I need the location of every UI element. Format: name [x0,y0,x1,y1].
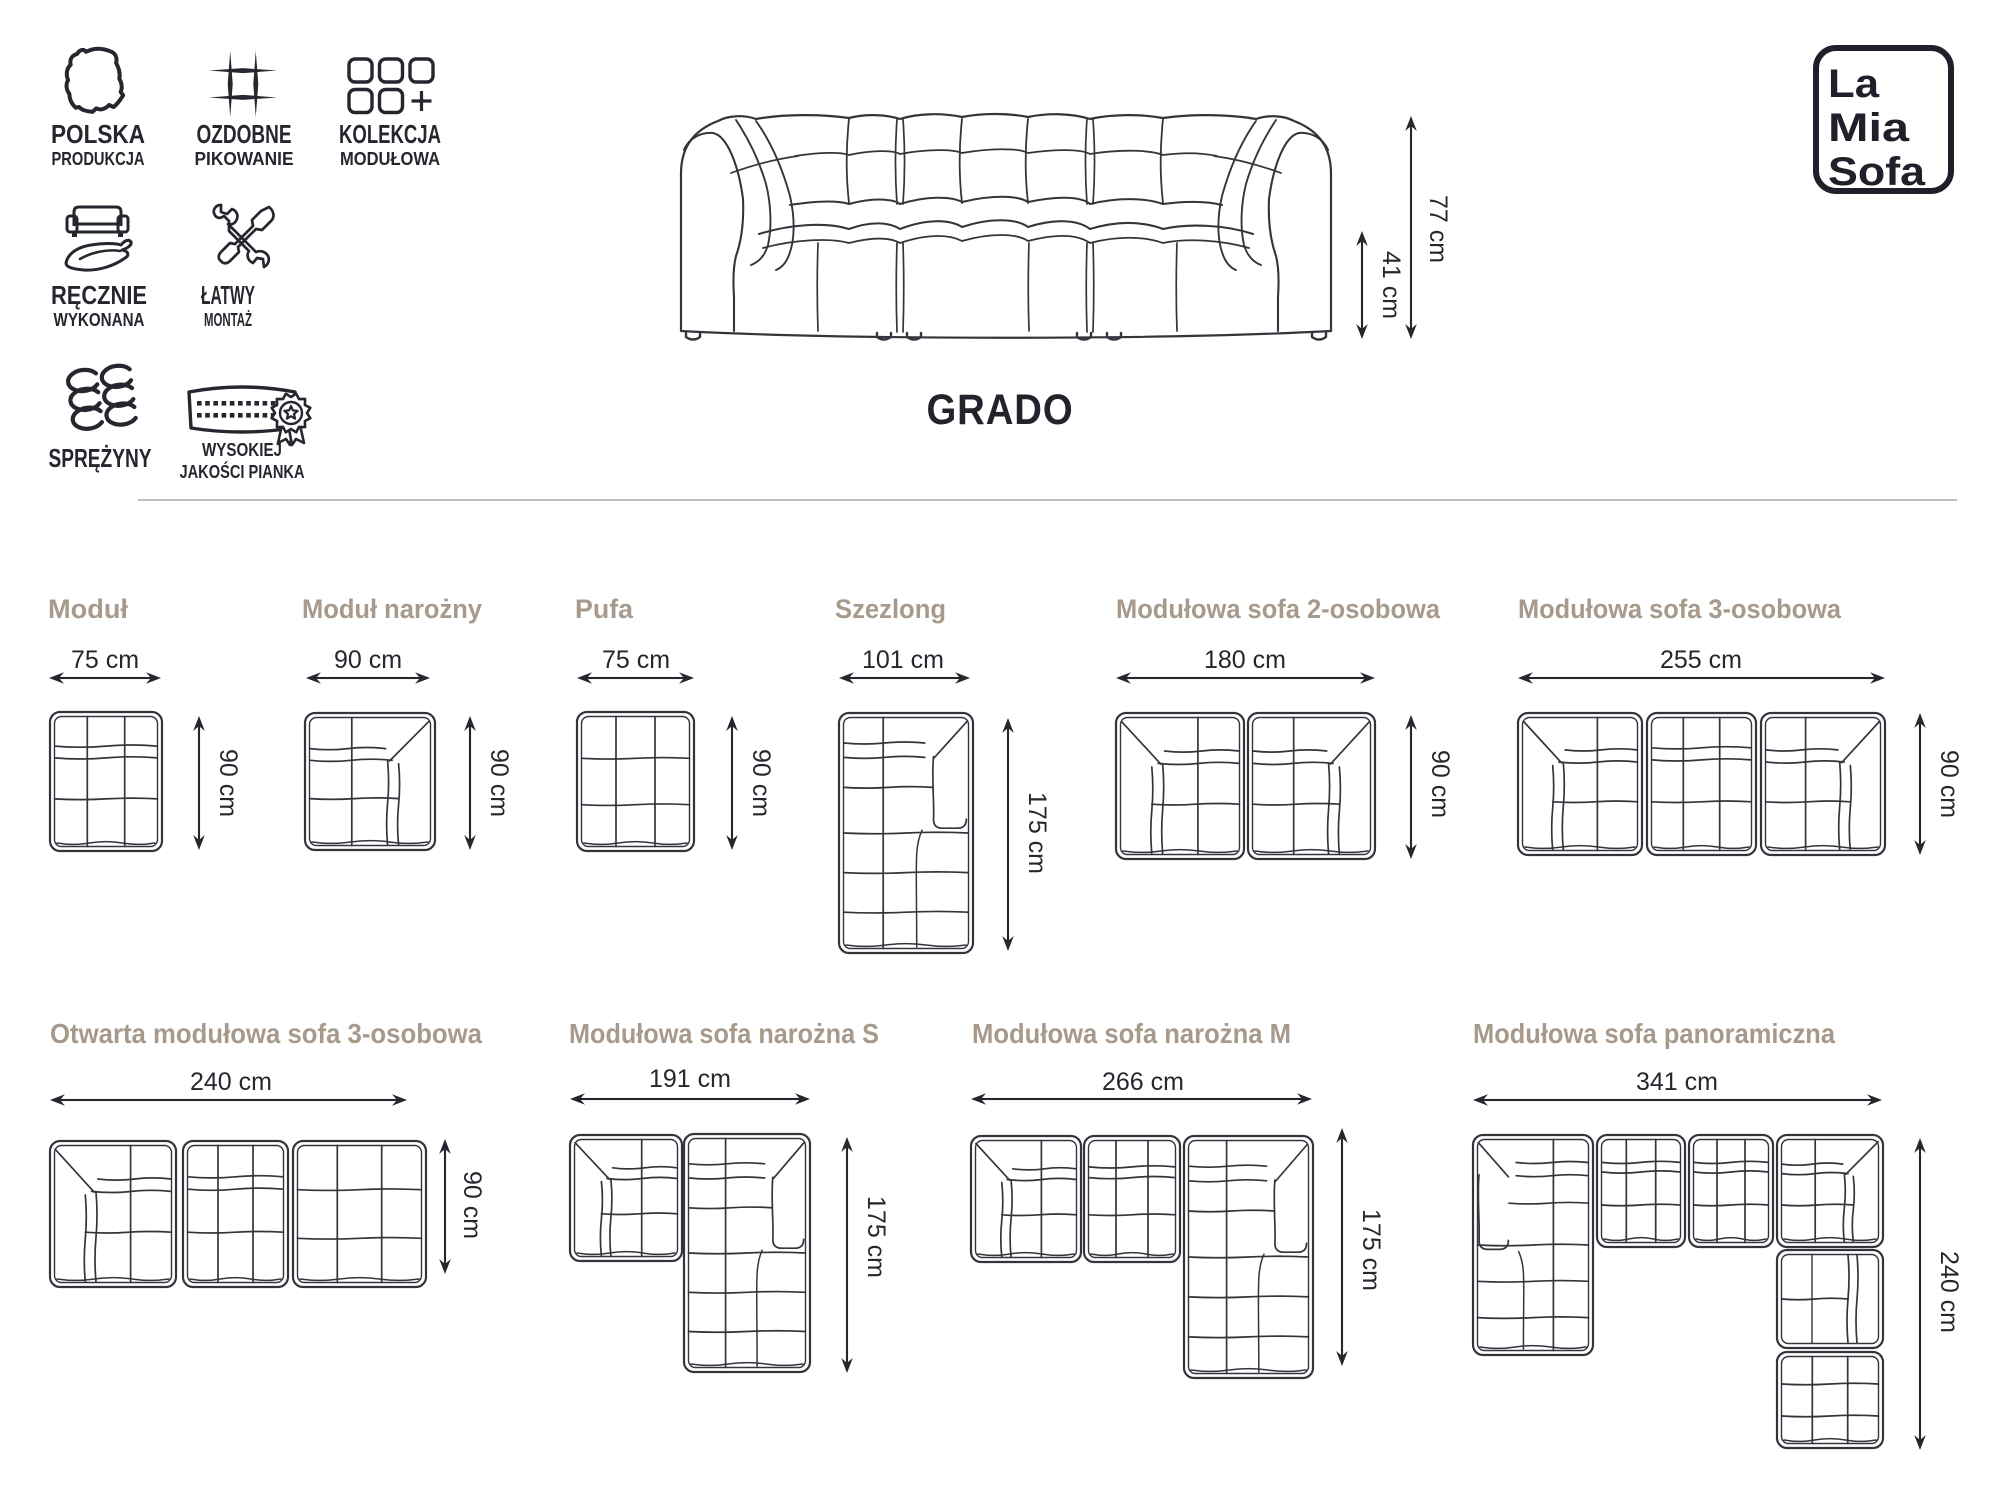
svg-text:90 cm: 90 cm [485,749,513,817]
svg-text:WYSOKIEJ: WYSOKIEJ [202,440,282,460]
svg-text:La: La [1828,62,1880,106]
svg-text:Modułowa sofa 3-osobowa: Modułowa sofa 3-osobowa [1518,594,1842,624]
svg-text:240 cm: 240 cm [1935,1251,1963,1333]
svg-text:255 cm: 255 cm [1660,646,1742,674]
svg-text:Moduł: Moduł [48,594,128,624]
svg-text:Otwarta modułowa sofa 3-osobow: Otwarta modułowa sofa 3-osobowa [50,1018,482,1049]
svg-text:MODUŁOWA: MODUŁOWA [340,149,440,169]
svg-text:Modułowa sofa narożna S: Modułowa sofa narożna S [569,1018,879,1049]
svg-text:240 cm: 240 cm [190,1068,272,1096]
svg-text:ŁATWY: ŁATWY [201,280,255,310]
svg-text:191 cm: 191 cm [649,1065,731,1093]
svg-text:341 cm: 341 cm [1636,1068,1718,1096]
svg-text:90 cm: 90 cm [1935,750,1963,818]
svg-text:90 cm: 90 cm [1426,750,1454,818]
svg-text:75 cm: 75 cm [71,646,139,674]
svg-text:180 cm: 180 cm [1204,646,1286,674]
svg-text:75 cm: 75 cm [602,646,670,674]
svg-text:RĘCZNIE: RĘCZNIE [51,280,147,310]
svg-text:Sofa: Sofa [1828,150,1926,194]
svg-text:Mia: Mia [1828,106,1910,150]
svg-text:JAKOŚCI PIANKA: JAKOŚCI PIANKA [180,461,305,482]
svg-text:175 cm: 175 cm [1023,792,1051,874]
svg-text:Szezlong: Szezlong [835,594,946,624]
svg-text:175 cm: 175 cm [862,1196,890,1278]
svg-text:266 cm: 266 cm [1102,1068,1184,1096]
svg-text:101 cm: 101 cm [862,646,944,674]
svg-text:Modułowa sofa 2-osobowa: Modułowa sofa 2-osobowa [1116,594,1441,624]
svg-text:WYKONANA: WYKONANA [54,310,145,330]
svg-text:POLSKA: POLSKA [51,119,145,149]
svg-text:GRADO: GRADO [927,386,1074,434]
svg-text:41 cm: 41 cm [1377,251,1405,319]
svg-text:Moduł narożny: Moduł narożny [302,594,482,624]
svg-text:90 cm: 90 cm [458,1171,486,1239]
svg-text:90 cm: 90 cm [214,749,242,817]
svg-text:KOLEKCJA: KOLEKCJA [339,119,441,149]
svg-text:Modułowa sofa panoramiczna: Modułowa sofa panoramiczna [1473,1018,1835,1049]
svg-text:Modułowa sofa narożna M: Modułowa sofa narożna M [972,1018,1291,1049]
svg-text:OZDOBNE: OZDOBNE [197,119,292,149]
svg-text:90 cm: 90 cm [334,646,402,674]
svg-text:175 cm: 175 cm [1357,1209,1385,1291]
svg-text:Pufa: Pufa [575,594,634,624]
svg-text:MONTAŻ: MONTAŻ [204,310,252,330]
svg-text:90 cm: 90 cm [747,749,775,817]
svg-text:77 cm: 77 cm [1424,195,1452,263]
svg-text:SPRĘŻYNY: SPRĘŻYNY [49,443,152,473]
svg-text:PRODUKCJA: PRODUKCJA [52,149,145,169]
svg-text:PIKOWANIE: PIKOWANIE [195,149,294,169]
